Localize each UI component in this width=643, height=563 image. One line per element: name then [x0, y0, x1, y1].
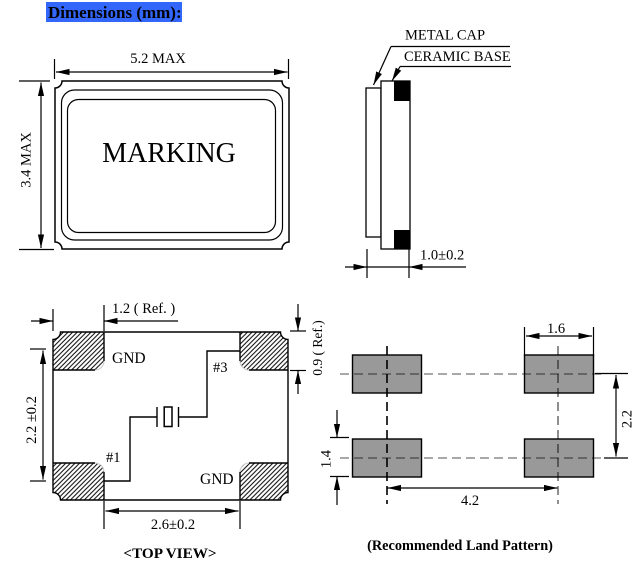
- svg-text:1.4: 1.4: [319, 449, 335, 468]
- svg-text:4.2: 4.2: [461, 493, 479, 509]
- svg-text:#1: #1: [106, 450, 121, 466]
- svg-text:3.4 MAX: 3.4 MAX: [19, 132, 35, 188]
- svg-text:CERAMIC BASE: CERAMIC BASE: [404, 49, 511, 65]
- svg-text:(Recommended Land Pattern): (Recommended Land Pattern): [367, 538, 553, 554]
- svg-text:2.2: 2.2: [620, 410, 636, 428]
- svg-text:0.9 ( Ref.): 0.9 ( Ref.): [310, 320, 325, 375]
- svg-text:2.2 ±0.2: 2.2 ±0.2: [24, 396, 40, 444]
- svg-text:2.6±0.2: 2.6±0.2: [151, 517, 195, 533]
- svg-text:GND: GND: [112, 350, 146, 367]
- svg-text:Dimensions (mm):: Dimensions (mm):: [48, 3, 182, 22]
- svg-text:1.2 ( Ref. ): 1.2 ( Ref. ): [112, 301, 175, 317]
- svg-text:1.0±0.2: 1.0±0.2: [420, 248, 464, 264]
- svg-text:#3: #3: [213, 360, 228, 376]
- svg-text:5.2 MAX: 5.2 MAX: [130, 51, 186, 67]
- svg-text:<TOP VIEW>: <TOP VIEW>: [123, 545, 216, 562]
- svg-text:GND: GND: [200, 471, 234, 488]
- svg-text:MARKING: MARKING: [102, 138, 236, 169]
- svg-text:1.6: 1.6: [547, 321, 565, 337]
- svg-text:METAL CAP: METAL CAP: [405, 28, 485, 44]
